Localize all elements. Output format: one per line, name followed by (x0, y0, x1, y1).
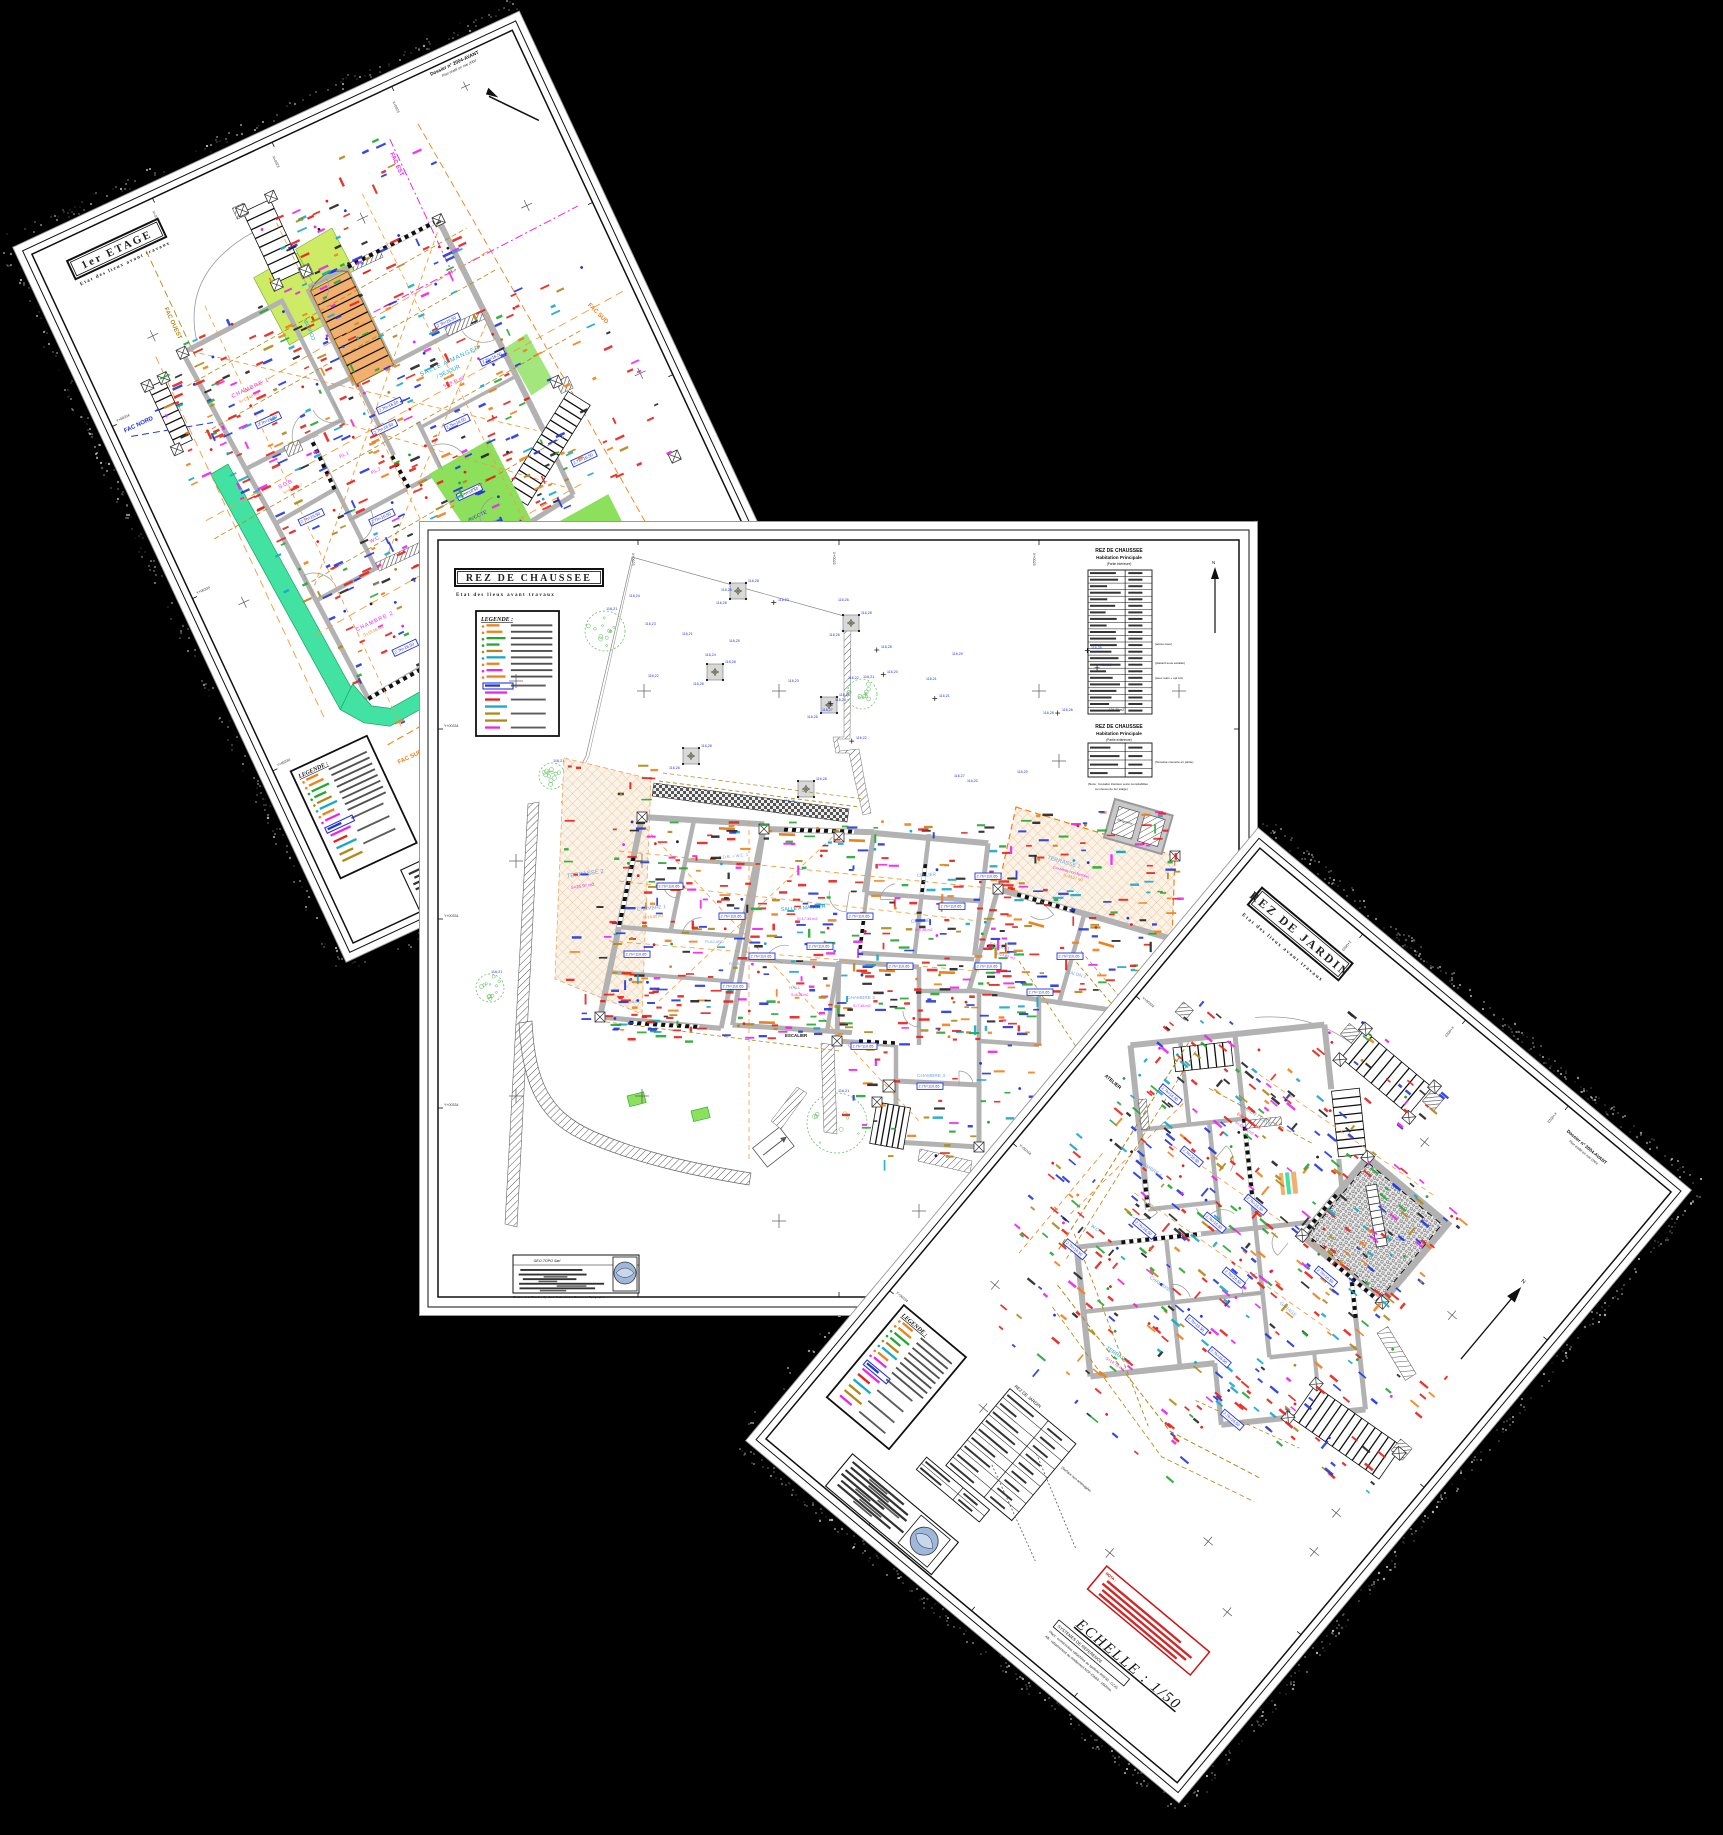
svg-text:116,26: 116,26 (693, 682, 704, 686)
svg-text:131.30 m2: 131.30 m2 (1109, 708, 1124, 712)
svg-text:REZ DE CHAUSSEE: REZ DE CHAUSSEE (466, 573, 592, 584)
svg-text:116,28: 116,28 (1043, 711, 1054, 715)
svg-text:(Partie extérieure): (Partie extérieure) (1106, 738, 1132, 742)
svg-text:2.7h=110.65: 2.7h=110.65 (659, 884, 680, 888)
svg-text:GEO-TOPO Sarl: GEO-TOPO Sarl (534, 1259, 561, 1263)
svg-text:116,26: 116,26 (669, 766, 680, 770)
svg-text:(accès cave): (accès cave) (1155, 642, 1172, 646)
svg-text:116,22: 116,22 (648, 674, 659, 678)
svg-text:2.7h=110.65: 2.7h=110.65 (723, 984, 744, 988)
svg-text:(placard sous escalier): (placard sous escalier) (1155, 661, 1185, 665)
svg-text:116,21: 116,21 (553, 759, 564, 763)
svg-text:(Terrasse couverte en partie): (Terrasse couverte en partie) (1155, 760, 1193, 764)
svg-text:2.7h=110.65: 2.7h=110.65 (941, 904, 962, 908)
svg-text:Habitation Principale: Habitation Principale (1096, 555, 1142, 560)
svg-text:116,27: 116,27 (954, 774, 965, 778)
svg-text:116,28: 116,28 (881, 645, 892, 649)
svg-text:REZ DE CHAUSSEE: REZ DE CHAUSSEE (1095, 548, 1143, 554)
svg-text:116,25: 116,25 (721, 588, 732, 592)
svg-text:116,26: 116,26 (716, 601, 727, 605)
svg-text:116,21: 116,21 (491, 970, 502, 974)
svg-text:LEGENDE :: LEGENDE : (480, 617, 513, 623)
svg-text:2.7h=110.65: 2.7h=110.65 (853, 1044, 874, 1048)
svg-text:2.7h=110.65: 2.7h=110.65 (849, 914, 870, 918)
svg-text:116,21: 116,21 (838, 1089, 849, 1093)
svg-text:R.D.B. 1: R.D.B. 1 (729, 961, 745, 966)
svg-text:2.7h=110.65: 2.7h=110.65 (977, 964, 998, 968)
svg-text:X+0023: X+0023 (832, 552, 836, 565)
svg-text:116,26: 116,26 (807, 715, 818, 719)
svg-text:116,28: 116,28 (861, 611, 872, 615)
svg-text:116,25: 116,25 (1091, 646, 1102, 650)
svg-text:CHAMBRE 2: CHAMBRE 2 (847, 995, 875, 1001)
svg-text:116,27: 116,27 (822, 708, 833, 712)
svg-text:(Partie intérieure): (Partie intérieure) (1107, 562, 1132, 566)
svg-text:116,25: 116,25 (729, 639, 740, 643)
svg-text:116,22: 116,22 (856, 736, 867, 740)
svg-text:116,28: 116,28 (725, 660, 736, 664)
svg-text:116,20: 116,20 (967, 779, 978, 783)
svg-text:116,21: 116,21 (682, 632, 693, 636)
svg-text:116,24: 116,24 (629, 594, 640, 598)
svg-text:116,28: 116,28 (701, 744, 712, 748)
svg-text:2.7h=110.65: 2.7h=110.65 (751, 954, 772, 958)
svg-text:2.7h=110.65: 2.7h=110.65 (919, 1084, 940, 1088)
svg-text:116,21: 116,21 (863, 675, 874, 679)
svg-text:2.7h=110.65: 2.7h=110.65 (977, 874, 998, 878)
svg-text:(avec main + opt scl): (avec main + opt scl) (1155, 676, 1183, 680)
svg-text:2.7h=110.65: 2.7h=110.65 (626, 952, 647, 956)
svg-text:116,28: 116,28 (816, 777, 827, 781)
svg-text:116,26: 116,26 (1062, 708, 1073, 712)
svg-text:S=17.34 m2: S=17.34 m2 (797, 917, 818, 921)
svg-text:Habitation Principale: Habitation Principale (1096, 731, 1142, 736)
svg-text:116,23: 116,23 (778, 598, 789, 602)
svg-text:2.7h=110.65: 2.7h=110.65 (1029, 990, 1050, 994)
svg-text:116,26: 116,26 (838, 598, 849, 602)
svg-text:116,23: 116,23 (788, 679, 799, 683)
svg-text:116,21: 116,21 (939, 694, 950, 698)
svg-text:Y+00334: Y+00334 (444, 914, 459, 918)
svg-text:2.7h=110.65: 2.7h=110.65 (809, 944, 830, 948)
svg-text:2.7h=110.65: 2.7h=110.65 (721, 914, 742, 918)
svg-text:S=7.88 m2: S=7.88 m2 (915, 928, 932, 932)
svg-text:116,21: 116,21 (926, 677, 937, 681)
svg-text:REZ DE CHAUSSEE: REZ DE CHAUSSEE (1095, 724, 1143, 730)
svg-text:Etat des lieux avant travaux: Etat des lieux avant travaux (456, 593, 555, 598)
svg-text:PLACARD: PLACARD (705, 939, 724, 944)
svg-text:116,20: 116,20 (887, 670, 898, 674)
svg-text:116,28: 116,28 (748, 579, 759, 583)
svg-text:116,26: 116,26 (829, 633, 840, 637)
svg-text:Membre de la Chambre Syndicale: Membre de la Chambre Syndicale Nationale… (513, 1295, 605, 1299)
svg-text:HALL: HALL (789, 985, 801, 990)
svg-text:Y+00334: Y+00334 (444, 724, 459, 728)
svg-text:116,21: 116,21 (606, 607, 617, 611)
svg-text:S=8.26 m2: S=8.26 m2 (791, 993, 808, 997)
svg-text:CHAMBRE 3: CHAMBRE 3 (917, 1073, 945, 1079)
svg-text:116,24: 116,24 (835, 698, 846, 702)
svg-text:S=7.48 m2: S=7.48 m2 (853, 1004, 870, 1008)
svg-text:Y+00334: Y+00334 (444, 1103, 459, 1107)
svg-text:2.7h=110.65: 2.7h=110.65 (1059, 954, 1080, 958)
svg-text:116,23: 116,23 (645, 622, 656, 626)
svg-text:X+0023: X+0023 (1032, 553, 1036, 566)
svg-text:116,22: 116,22 (848, 676, 859, 680)
svg-text:au niveau du 1er étage): au niveau du 1er étage) (1095, 787, 1128, 791)
svg-text:N: N (1212, 560, 1215, 565)
svg-text:ESCALIER: ESCALIER (785, 1033, 808, 1038)
svg-text:116,29: 116,29 (952, 652, 963, 656)
svg-text:2.7h=110.65: 2.7h=110.65 (889, 964, 910, 968)
svg-text:(Nota : l'escalier intérieur a: (Nota : l'escalier intérieur a été compt… (1088, 782, 1148, 786)
svg-text:116,24: 116,24 (705, 653, 716, 657)
svg-text:116,29: 116,29 (1101, 663, 1112, 667)
svg-text:116,20: 116,20 (1017, 770, 1028, 774)
